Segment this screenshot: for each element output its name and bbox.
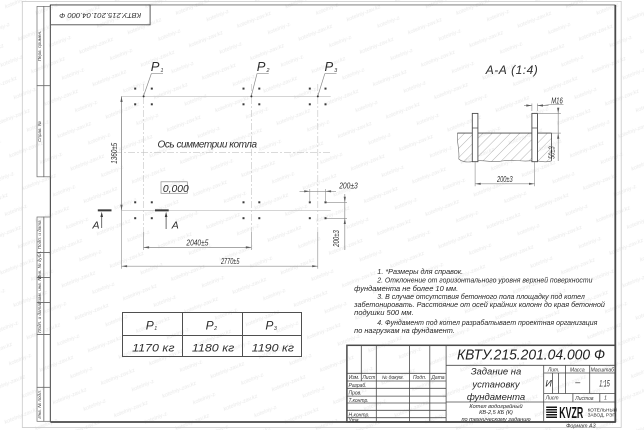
svg-text:подушки 500 мм.: подушки 500 мм. [354,309,414,317]
svg-text:3: 3 [334,68,337,74]
svg-text:1: 1 [154,326,157,332]
svg-text:200±3: 200±3 [496,175,513,184]
svg-text:фундамента: фундамента [467,392,525,403]
svg-text:2: 2 [266,68,270,74]
svg-text:P: P [265,319,273,333]
svg-text:2040±5: 2040±5 [186,239,209,248]
svg-text:Пров.: Пров. [349,391,362,397]
svg-text:Подп.: Подп. [413,375,426,381]
svg-text:P: P [206,319,214,333]
svg-text:И: И [545,379,552,389]
svg-text:Задание на: Задание на [471,367,522,378]
svg-text:КВТУ.215.201.04.000 Ф: КВТУ.215.201.04.000 Ф [457,347,605,363]
svg-text:установку: установку [471,379,521,390]
svg-text:Т.контр.: Т.контр. [349,398,369,404]
svg-text:2. Отклонение от горизонтальн: 2. Отклонение от горизонтального уровня … [376,277,592,285]
svg-text:А: А [92,220,100,232]
svg-text:200±3: 200±3 [332,230,341,248]
svg-text:КВ-2,5 КБ (К): КВ-2,5 КБ (К) [479,410,513,416]
svg-text:1: 1 [161,68,164,74]
svg-text:Котел водогрейный: Котел водогрейный [469,403,522,410]
svg-text:Масса: Масса [570,368,585,374]
svg-text:2: 2 [213,326,217,332]
svg-text:Ось симметрии котла: Ось симметрии котла [158,140,258,151]
svg-text:4. Фундамент под котел разраб: 4. Фундамент под котел разрабатывает про… [377,319,597,327]
svg-text:Изм.: Изм. [349,375,360,381]
svg-text:Формат А3: Формат А3 [566,424,596,430]
svg-text:Разраб.: Разраб. [349,383,367,389]
svg-text:1. *Размеры для справок.: 1. *Размеры для справок. [377,268,463,276]
svg-text:забетонировать. Расстояние от: забетонировать. Расстояние от осей крайн… [353,301,605,309]
svg-text:Листов: Листов [574,396,594,402]
svg-text:Лист: Лист [361,375,375,381]
svg-text:3: 3 [274,326,277,332]
svg-text:Лист: Лист [545,396,559,402]
svg-text:1180 кг: 1180 кг [192,342,235,354]
svg-text:А: А [171,220,179,232]
svg-text:1:15: 1:15 [599,379,610,389]
svg-text:А-А (1:4): А-А (1:4) [485,63,539,77]
svg-text:1: 1 [604,396,607,402]
svg-text:50±3: 50±3 [547,146,556,159]
svg-text:КВТУ.215.201.04.000 Ф: КВТУ.215.201.04.000 Ф [59,11,141,20]
svg-text:КОТЕЛЬНЫЙ: КОТЕЛЬНЫЙ [588,405,617,412]
svg-text:Перв. примен.: Перв. примен. [37,31,42,62]
svg-text:Лит.: Лит. [547,368,560,374]
svg-text:P: P [325,59,334,74]
svg-text:200±3: 200±3 [338,182,358,191]
svg-text:–: – [574,377,581,387]
svg-text:Инв. № подл.: Инв. № подл. [37,390,42,419]
svg-text:P: P [257,59,266,74]
svg-text:P: P [146,319,154,333]
svg-text:Справ. №: Справ. № [37,121,42,142]
svg-text:2770±5: 2770±5 [220,257,240,266]
svg-text:KVZR: KVZR [559,405,583,422]
svg-text:Утв.: Утв. [349,418,360,424]
svg-text:Подп. и дата: Подп. и дата [37,304,42,333]
svg-text:Инв. № дубл.: Инв. № дубл. [37,251,42,279]
svg-text:1360±5: 1360±5 [110,142,119,163]
svg-text:Дата: Дата [430,375,444,381]
svg-text:№ докум.: № докум. [382,375,404,381]
svg-text:Взам. инв. №: Взам. инв. № [37,276,42,304]
svg-text:0,000: 0,000 [163,184,189,195]
svg-text:фундамента не более 10 мм.: фундамента не более 10 мм. [354,285,458,293]
svg-text:по нагрузкам на фундамент.: по нагрузкам на фундамент. [354,327,455,335]
svg-text:1190 кг: 1190 кг [252,342,295,354]
svg-text:1170 кг: 1170 кг [132,342,175,354]
svg-text:Подп. и дата: Подп. и дата [37,220,42,249]
svg-text:по техническому заданию: по техническому заданию [461,417,531,423]
svg-text:P: P [151,59,160,74]
svg-text:3. В случае отсутствия бетонн: 3. В случае отсутствия бетонного пола пл… [377,293,585,301]
svg-text:Масштаб: Масштаб [591,368,615,374]
svg-text:ЗАВОД, РЭП: ЗАВОД, РЭП [588,412,616,417]
svg-text:М16: М16 [551,96,563,105]
